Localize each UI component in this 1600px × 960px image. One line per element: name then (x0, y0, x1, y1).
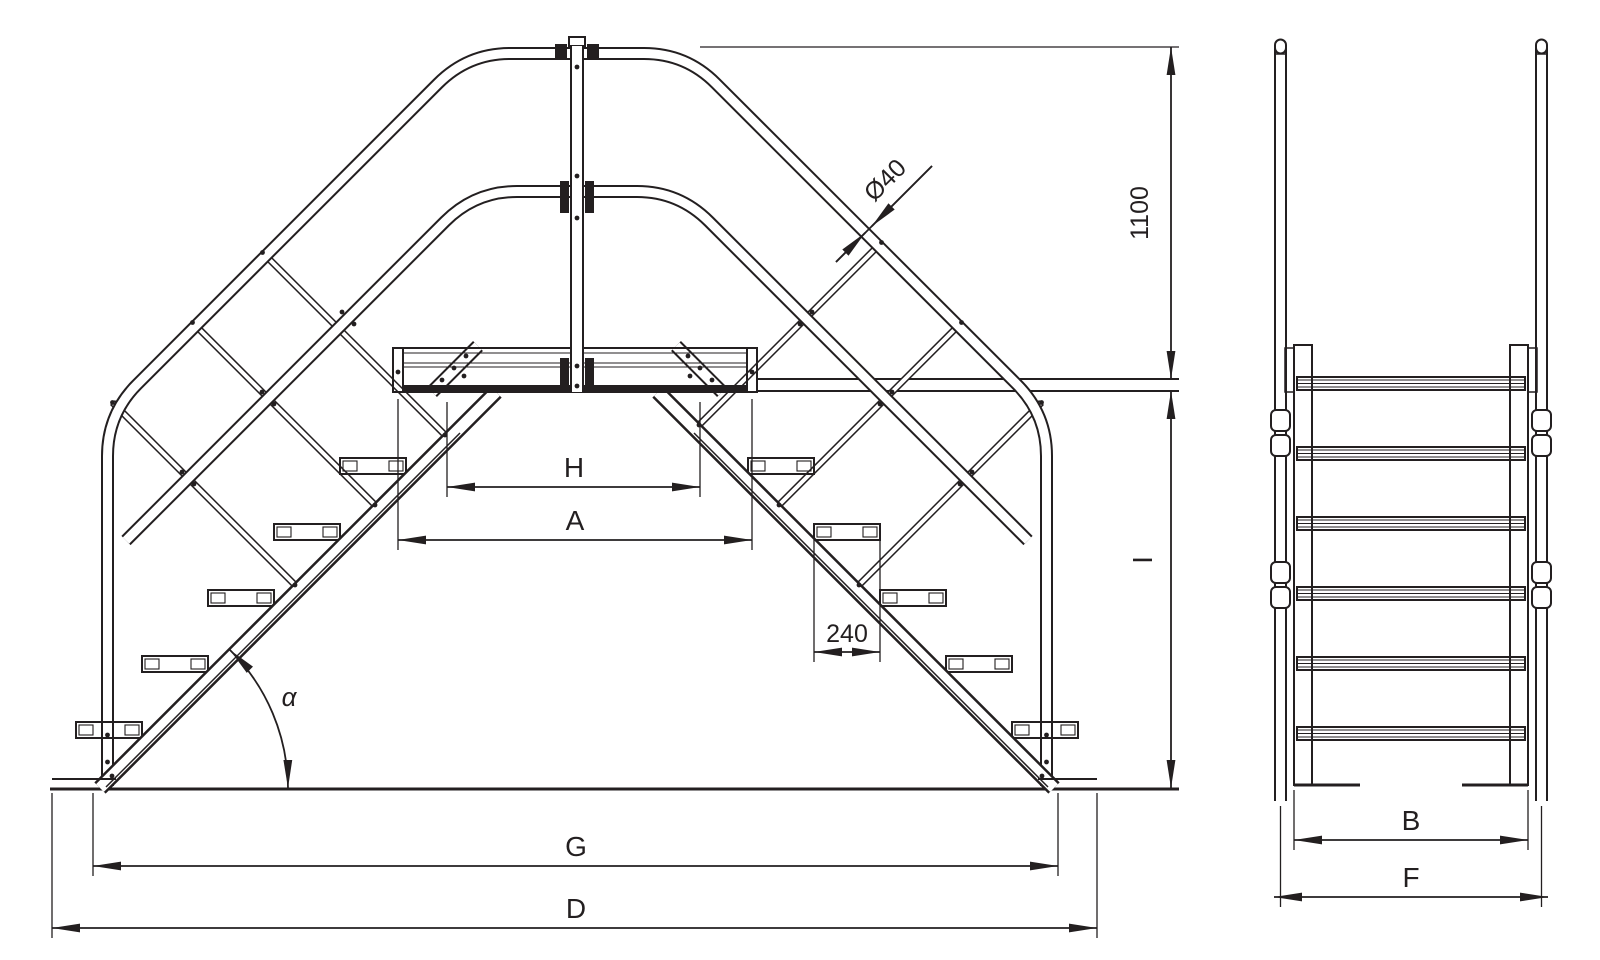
dim-label-tread-depth: 240 (826, 620, 868, 648)
tread (208, 590, 274, 606)
step (1297, 657, 1525, 670)
stair-stringers-front (1285, 345, 1537, 785)
dimension-platform-height: I (1127, 391, 1171, 788)
tread (814, 524, 880, 540)
step (1297, 727, 1525, 740)
dim-label-B: B (1402, 805, 1421, 836)
handrail-posts-front (1274, 45, 1548, 801)
dim-label-G: G (565, 831, 587, 862)
side-elevation-view (50, 37, 1179, 789)
tread (748, 458, 814, 474)
dim-label-platform-height: I (1127, 556, 1158, 564)
dimensions: Ø40 1100 I H A 240 (52, 47, 1548, 938)
step (1297, 587, 1525, 600)
center-post (555, 37, 599, 392)
drawing-canvas: Ø40 1100 I H A 240 (0, 0, 1600, 960)
stair-treads-side (76, 458, 1078, 738)
dim-label-F: F (1402, 862, 1419, 893)
floor-level-lines (757, 379, 1179, 391)
tread (946, 656, 1012, 672)
dim-label-D: D (566, 893, 586, 924)
step (1297, 517, 1525, 530)
dimension-handrail-height: 1100 (700, 47, 1179, 379)
dim-label-incline-angle: α (282, 682, 298, 712)
dimension-B: B (1294, 790, 1528, 850)
step (1297, 447, 1525, 460)
dimension-H: H (447, 402, 700, 497)
technical-drawing: Ø40 1100 I H A 240 (0, 0, 1600, 960)
dim-label-handrail-height: 1100 (1126, 186, 1154, 240)
tread (274, 524, 340, 540)
tread (880, 590, 946, 606)
stair-steps-front (1297, 377, 1525, 740)
dimension-G: G (93, 793, 1058, 876)
dim-label-H: H (564, 452, 584, 483)
tread (340, 458, 406, 474)
dimension-incline-angle: α (230, 650, 298, 788)
front-elevation-view (1271, 45, 1551, 801)
dim-label-tube-diameter: Ø40 (859, 154, 912, 207)
step (1297, 377, 1525, 390)
tread (142, 656, 208, 672)
dim-label-A: A (566, 505, 585, 536)
